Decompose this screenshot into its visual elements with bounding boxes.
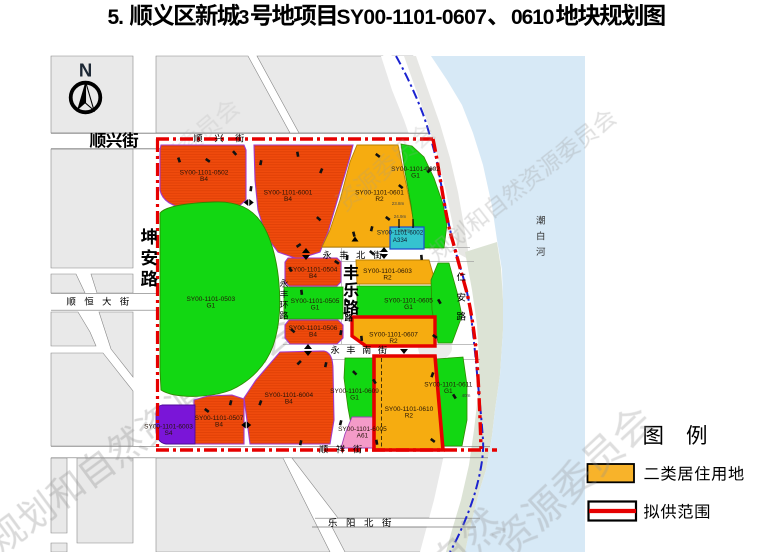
svg-text:R2: R2 [383,274,392,281]
svg-text:B4: B4 [215,421,223,428]
svg-text:N: N [79,60,92,81]
svg-text:R2: R2 [405,412,414,419]
svg-text:SY00-1101-0607: SY00-1101-0607 [337,6,487,29]
svg-text:5.: 5. [108,6,124,29]
svg-text:R2: R2 [389,338,398,345]
svg-text:24.9m: 24.9m [394,214,407,219]
svg-text:40m: 40m [462,393,471,398]
svg-text:G1: G1 [206,302,215,309]
svg-text:B4: B4 [285,398,293,405]
svg-text:G1: G1 [311,304,320,311]
svg-text:R2: R2 [375,196,384,203]
svg-text:G1: G1 [444,388,453,395]
svg-text:A334: A334 [393,237,408,244]
svg-text:3: 3 [238,7,249,29]
svg-text:S4: S4 [165,430,173,437]
svg-text:G1: G1 [350,394,359,401]
svg-text:G1: G1 [404,304,413,311]
svg-text:SY00-1101-6002: SY00-1101-6002 [377,230,424,237]
svg-text:23.8m: 23.8m [392,201,405,206]
svg-text:0610: 0610 [511,6,554,29]
svg-text:B4: B4 [284,196,292,203]
svg-text:G1: G1 [411,172,420,179]
svg-text:B4: B4 [309,331,317,338]
svg-text:B4: B4 [200,176,208,183]
svg-text:A61: A61 [357,432,369,439]
svg-text:B4: B4 [309,273,317,280]
